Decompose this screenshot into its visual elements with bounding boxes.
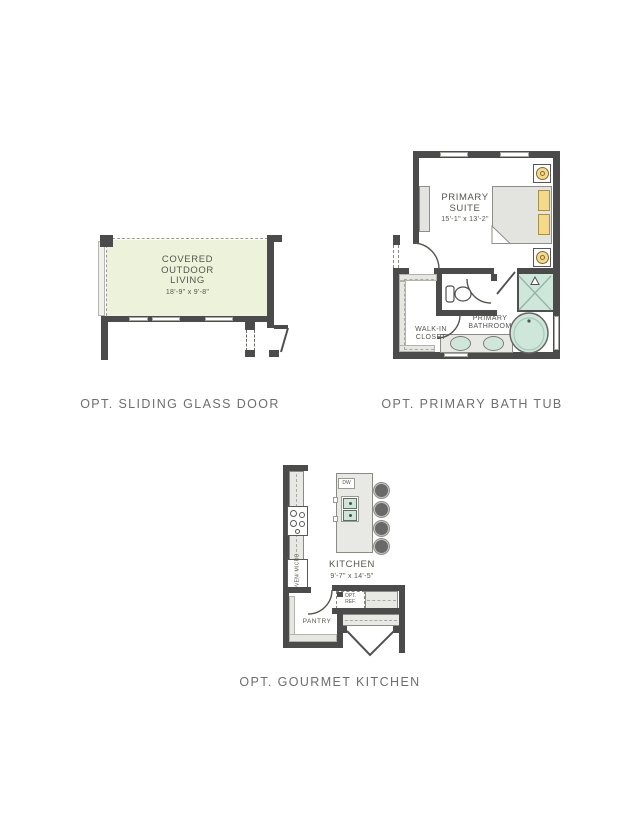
wall-segment xyxy=(283,642,343,648)
room-label-line: CLOSET xyxy=(400,334,462,342)
floorplan-options-sheet: COVERED OUTDOOR LIVING 18'-9" x 9'-8" OP… xyxy=(0,0,640,828)
window xyxy=(444,353,468,357)
room-label-line: PRIMARY xyxy=(455,315,525,323)
door-swing xyxy=(308,590,332,614)
island-handle xyxy=(333,516,338,522)
window xyxy=(440,152,468,157)
room-label-walk-in-closet: WALK-IN CLOSET xyxy=(400,326,462,342)
dashed-opening xyxy=(393,245,399,268)
room-label-kitchen: KITCHEN 9'-7" x 14'-5" xyxy=(312,560,392,582)
room-label-line: PRIMARY xyxy=(420,193,510,204)
counter-dashed-centerline xyxy=(340,620,397,621)
wall-segment xyxy=(393,626,405,633)
wall-segment xyxy=(283,587,311,593)
burner-icon xyxy=(295,529,300,534)
dashed-opening xyxy=(246,330,255,351)
stool xyxy=(374,539,389,554)
burner-icon xyxy=(299,512,305,518)
wall-segment xyxy=(491,274,497,281)
caption-gourmet-kitchen: OPT. GOURMET KITCHEN xyxy=(210,675,450,689)
stool xyxy=(374,483,389,498)
window xyxy=(129,317,148,321)
wall-segment xyxy=(100,235,113,247)
drain-icon xyxy=(349,502,352,505)
burner-icon xyxy=(299,521,305,527)
window xyxy=(554,316,559,350)
door-swing xyxy=(467,279,491,303)
opt-ref-line: REF. xyxy=(336,600,365,606)
room-dimensions: 18'-9" x 9'-8" xyxy=(107,288,268,299)
tub-faucet-icon xyxy=(527,319,530,322)
island-handle xyxy=(333,497,338,503)
wall-segment xyxy=(245,350,255,357)
wall-segment xyxy=(393,235,400,245)
burner-icon xyxy=(290,520,297,527)
wall-segment xyxy=(101,322,108,360)
wall-segment xyxy=(245,322,255,330)
room-label-primary-suite: PRIMARY SUITE 15'-1" x 13'-2" xyxy=(420,193,510,226)
lamp-icon xyxy=(540,255,545,260)
wall-segment xyxy=(434,268,494,274)
wall-segment xyxy=(393,352,560,359)
patio-dashed-edge-top xyxy=(112,238,268,239)
caption-sliding-glass-door: OPT. SLIDING GLASS DOOR xyxy=(60,397,300,411)
room-label-line: BATHROOM xyxy=(455,323,525,331)
caption-primary-bath-tub: OPT. PRIMARY BATH TUB xyxy=(352,397,592,411)
shower xyxy=(517,274,553,312)
lamp-icon xyxy=(540,171,545,176)
micro-label: MICRO xyxy=(294,553,300,571)
counter-dashed-centerline xyxy=(367,600,396,601)
stool xyxy=(374,521,389,536)
room-label-primary-bathroom: PRIMARY BATHROOM xyxy=(455,315,525,331)
toilet-tank xyxy=(446,286,454,302)
door-leaf xyxy=(497,272,515,294)
linework-overlay xyxy=(0,0,640,828)
dishwasher-label: DW xyxy=(338,480,355,486)
wall-segment xyxy=(337,608,343,648)
room-label-line: KITCHEN xyxy=(312,560,392,571)
sink xyxy=(483,336,504,351)
room-label-line: COVERED xyxy=(107,255,268,266)
wall-segment xyxy=(269,350,279,357)
pillow xyxy=(538,190,550,211)
room-label-pantry: PANTRY xyxy=(291,618,343,625)
room-dimensions: 15'-1" x 13'-2" xyxy=(420,215,510,226)
door-leaf-pair xyxy=(347,631,394,655)
wall-segment xyxy=(267,236,274,328)
siding-strip xyxy=(98,241,105,316)
door-header xyxy=(274,325,288,329)
pillow xyxy=(538,214,550,235)
pantry-shelf xyxy=(289,634,337,642)
drain-icon xyxy=(349,514,352,517)
window xyxy=(205,317,233,321)
wall-segment xyxy=(337,592,343,597)
stool xyxy=(374,502,389,517)
room-label-covered-outdoor-living: COVERED OUTDOOR LIVING 18'-9" x 9'-8" xyxy=(107,255,268,298)
toilet-bowl xyxy=(455,287,471,301)
window xyxy=(152,317,180,321)
window xyxy=(500,152,529,157)
burner-icon xyxy=(290,510,297,517)
room-label-line: SUITE xyxy=(420,204,510,215)
door-swing xyxy=(413,243,439,269)
room-dimensions: 9'-7" x 14'-5" xyxy=(312,572,392,583)
room-label-line: WALK-IN xyxy=(400,326,462,334)
wall-segment xyxy=(399,586,405,653)
door-leaf xyxy=(281,328,288,352)
room-label-line: LIVING xyxy=(107,276,268,287)
wall-segment xyxy=(413,151,560,158)
